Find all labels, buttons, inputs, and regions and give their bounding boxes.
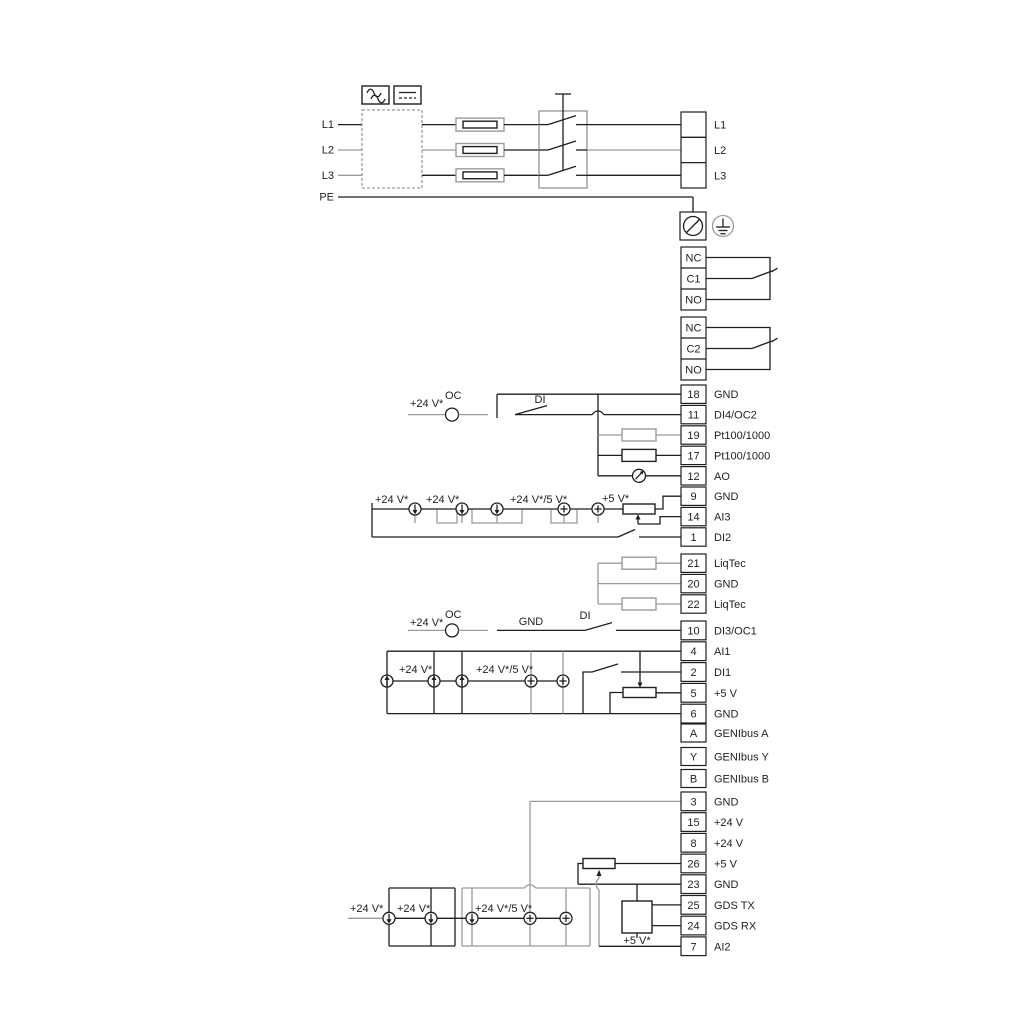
svg-text:1: 1 — [690, 532, 696, 544]
svg-text:3: 3 — [690, 796, 696, 808]
oc-label: OC — [445, 390, 462, 402]
ai3-source-block: +24 V* +24 V* +24 V*/5 V* +5 V* — [372, 493, 681, 537]
di3-oc1-wiring: +24 V* OC GND DI — [408, 609, 681, 637]
svg-text:+5 V: +5 V — [714, 688, 738, 700]
svg-text:2: 2 — [690, 667, 696, 679]
terminal-row: 9GND — [681, 487, 739, 505]
emc-filter-box — [362, 110, 422, 188]
svg-text:DI4/OC2: DI4/OC2 — [714, 410, 757, 422]
svg-text:14: 14 — [687, 512, 699, 524]
svg-text:LiqTec: LiqTec — [714, 558, 746, 570]
svg-text:+24 V: +24 V — [714, 838, 744, 850]
svg-text:19: 19 — [687, 430, 699, 442]
svg-text:23: 23 — [687, 879, 699, 891]
svg-text:DI2: DI2 — [714, 532, 731, 544]
svg-text:+24 V: +24 V — [714, 817, 744, 829]
v5-label: +5 V* — [602, 493, 630, 505]
v24-label: +24 V* — [410, 398, 444, 410]
terminal-row: 7AI2 — [681, 937, 731, 956]
v24-5v-label: +24 V*/5 V* — [475, 903, 533, 915]
v5-label: +5 V* — [623, 935, 651, 947]
svg-text:GND: GND — [714, 879, 739, 891]
group-c-wiring: +24 V* OC DI — [408, 390, 681, 482]
out-l3-label: L3 — [714, 170, 726, 182]
out-l1-label: L1 — [714, 120, 726, 132]
terminal-row: 26+5 V — [681, 854, 738, 873]
svg-text:5: 5 — [690, 688, 696, 700]
liqtec-wiring — [598, 557, 681, 610]
svg-text:AI1: AI1 — [714, 646, 731, 658]
terminal-row: 20GND — [681, 574, 739, 592]
svg-text:GND: GND — [714, 491, 739, 503]
svg-text:4: 4 — [690, 646, 696, 658]
svg-text:GDS TX: GDS TX — [714, 900, 755, 912]
svg-text:15: 15 — [687, 817, 699, 829]
oc-label: OC — [445, 609, 462, 621]
mains-pe-label: PE — [319, 192, 334, 204]
gds-sensor-box: +5 V* — [622, 884, 681, 947]
svg-text:LiqTec: LiqTec — [714, 599, 746, 611]
ai1-potentiometer — [623, 688, 656, 698]
svg-text:22: 22 — [687, 599, 699, 611]
svg-text:GENIbus Y: GENIbus Y — [714, 752, 769, 764]
terminal-group-f: 3GND 15+24 V 8+24 V 26+5 V 23GND 25GDS T… — [681, 792, 757, 956]
svg-text:GND: GND — [714, 579, 739, 591]
svg-text:GDS RX: GDS RX — [714, 921, 757, 933]
svg-text:+5 V: +5 V — [714, 859, 738, 871]
relay1-no: NO — [685, 295, 702, 307]
svg-text:AI2: AI2 — [714, 941, 731, 953]
pt100-resistor-1 — [622, 429, 656, 441]
terminal-row: 8+24 V — [681, 833, 744, 852]
terminal-row: 24GDS RX — [681, 916, 757, 935]
svg-text:10: 10 — [687, 625, 699, 637]
terminal-row: 19Pt100/1000 — [681, 426, 770, 444]
terminal-row: 3GND — [681, 792, 739, 811]
terminal-row: 17Pt100/1000 — [681, 446, 770, 464]
relay1-c1: C1 — [686, 274, 700, 286]
relay1-block: NC C1 NO — [681, 247, 778, 310]
terminal-row: 12AO — [681, 467, 730, 485]
analog-output-meter-icon — [633, 469, 646, 482]
svg-text:21: 21 — [687, 558, 699, 570]
terminal-row: 14AI3 — [681, 507, 731, 525]
svg-text:8: 8 — [690, 838, 696, 850]
ac-symbol-icon — [362, 86, 389, 104]
svg-text:GENIbus A: GENIbus A — [714, 728, 769, 740]
svg-text:24: 24 — [687, 921, 699, 933]
main-switch — [539, 94, 587, 188]
terminal-row: AGENIbus A — [681, 724, 769, 742]
svg-text:B: B — [690, 774, 697, 786]
bottom-source-block: +24 V* +24 V* +24 V*/5 V* — [348, 801, 681, 947]
gnd-label: GND — [519, 616, 544, 628]
relay2-nc: NC — [686, 323, 702, 335]
terminal-group-c: 18GND 11DI4/OC2 19Pt100/1000 17Pt100/100… — [681, 385, 770, 546]
terminal-row: 15+24 V — [681, 813, 744, 832]
relay2-c2: C2 — [686, 344, 700, 356]
terminal-row: BGENIbus B — [681, 770, 769, 788]
svg-text:6: 6 — [690, 709, 696, 721]
terminal-row: 18GND — [681, 385, 739, 403]
svg-text:AI3: AI3 — [714, 512, 731, 524]
svg-text:DI3/OC1: DI3/OC1 — [714, 625, 757, 637]
relay2-block: NC C2 NO — [681, 317, 778, 380]
svg-text:17: 17 — [687, 450, 699, 462]
terminal-row: 4AI1 — [681, 642, 731, 661]
pe-earth-terminal — [338, 197, 734, 240]
terminal-row: 6GND — [681, 704, 739, 723]
terminal-row: 21LiqTec — [681, 554, 746, 572]
wiring-diagram: L1 L2 L3 PE — [0, 0, 1024, 1024]
terminal-row: 22LiqTec — [681, 595, 746, 613]
svg-text:20: 20 — [687, 579, 699, 591]
ai1-source-block: +24 V* +24 V*/5 V* — [381, 651, 681, 713]
fuse-l1 — [456, 118, 504, 131]
svg-text:12: 12 — [687, 471, 699, 483]
svg-text:25: 25 — [687, 900, 699, 912]
relay1-nc: NC — [686, 253, 702, 265]
di-label: DI — [535, 394, 546, 406]
svg-text:AO: AO — [714, 471, 730, 483]
mains-l1-label: L1 — [322, 119, 334, 131]
svg-text:Pt100/1000: Pt100/1000 — [714, 430, 770, 442]
pt100-resistor-2 — [622, 449, 656, 461]
svg-text:A: A — [690, 728, 698, 740]
svg-text:GENIbus B: GENIbus B — [714, 774, 769, 786]
svg-text:18: 18 — [687, 389, 699, 401]
terminal-row: YGENIbus Y — [681, 748, 769, 766]
svg-text:GND: GND — [714, 389, 739, 401]
fuse-l3 — [456, 169, 504, 182]
terminal-row: 2DI1 — [681, 663, 731, 682]
v24-5v-label: +24 V*/5 V* — [476, 664, 534, 676]
earth-ground-icon — [713, 216, 734, 237]
mains-output-block: L1 L2 L3 — [681, 112, 726, 188]
terminal-row: 11DI4/OC2 — [681, 405, 757, 423]
v24-label: +24 V* — [397, 903, 431, 915]
svg-text:7: 7 — [690, 941, 696, 953]
v24-label: +24 V* — [426, 494, 460, 506]
svg-text:GND: GND — [714, 709, 739, 721]
terminal-row: 10DI3/OC1 — [681, 621, 757, 640]
v24-5v-label: +24 V*/5 V* — [510, 494, 568, 506]
svg-text:9: 9 — [690, 491, 696, 503]
terminal-row: 23GND — [681, 875, 739, 894]
out-l2-label: L2 — [714, 145, 726, 157]
v24-label: +24 V* — [410, 617, 444, 629]
mains-input-section: L1 L2 L3 PE — [319, 86, 733, 240]
terminal-group-e: 10DI3/OC1 4AI1 2DI1 5+5 V 6GND AGENIbus … — [681, 621, 769, 788]
terminal-row: 5+5 V — [681, 683, 738, 702]
wiring-diagram-svg: L1 L2 L3 PE — [0, 0, 1024, 1024]
relay2-no: NO — [685, 365, 702, 377]
svg-text:26: 26 — [687, 859, 699, 871]
v24-label: +24 V* — [350, 903, 384, 915]
svg-text:11: 11 — [688, 410, 699, 422]
terminal-group-d: 21LiqTec 20GND 22LiqTec — [681, 554, 746, 613]
mains-l2-label: L2 — [322, 145, 334, 157]
svg-text:Y: Y — [690, 752, 698, 764]
v24-label: +24 V* — [399, 664, 433, 676]
svg-text:DI1: DI1 — [714, 667, 731, 679]
liqtec-resistor-2 — [622, 598, 656, 610]
terminal-row: 25GDS TX — [681, 896, 755, 915]
svg-text:GND: GND — [714, 796, 739, 808]
ai2-potentiometer — [583, 859, 615, 869]
mains-l3-label: L3 — [322, 170, 334, 182]
ai3-potentiometer — [623, 504, 655, 514]
dc-symbol-icon — [394, 86, 421, 104]
terminal-row: 1DI2 — [681, 528, 731, 546]
fuse-l2 — [456, 144, 504, 157]
v24-label: +24 V* — [375, 494, 409, 506]
svg-text:Pt100/1000: Pt100/1000 — [714, 450, 770, 462]
di-label: DI — [580, 610, 591, 622]
liqtec-resistor-1 — [622, 557, 656, 569]
